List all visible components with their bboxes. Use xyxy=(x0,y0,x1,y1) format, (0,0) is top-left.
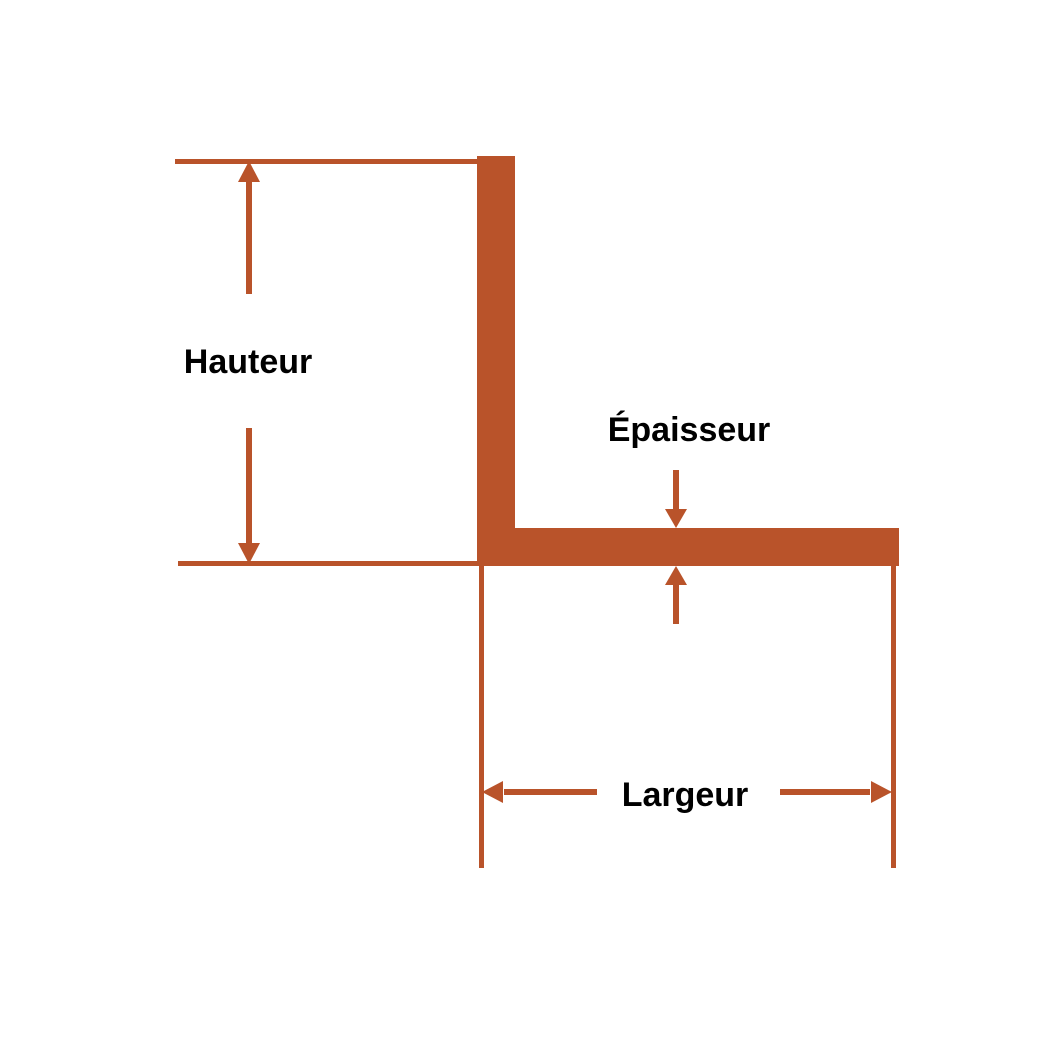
epaisseur-label: Épaisseur xyxy=(608,413,771,447)
diagram-canvas: Hauteur Épaisseur Largeur xyxy=(0,0,1050,1050)
left-extension-line xyxy=(479,566,484,868)
angle-profile-diagram xyxy=(0,0,1050,1050)
hauteur-arrow-down-head xyxy=(238,543,260,564)
hauteur-label: Hauteur xyxy=(184,345,312,379)
l-profile-shape xyxy=(477,156,899,566)
epaisseur-arrow-down-head xyxy=(665,509,687,528)
largeur-arrow-right-head xyxy=(871,781,892,803)
right-extension-line xyxy=(891,566,896,868)
largeur-arrow-left-head xyxy=(482,781,503,803)
top-extension-line xyxy=(175,159,477,164)
largeur-label: Largeur xyxy=(622,778,749,812)
epaisseur-arrow-up-head xyxy=(665,566,687,585)
hauteur-arrow-up-head xyxy=(238,161,260,182)
bottom-extension-line xyxy=(178,561,478,566)
